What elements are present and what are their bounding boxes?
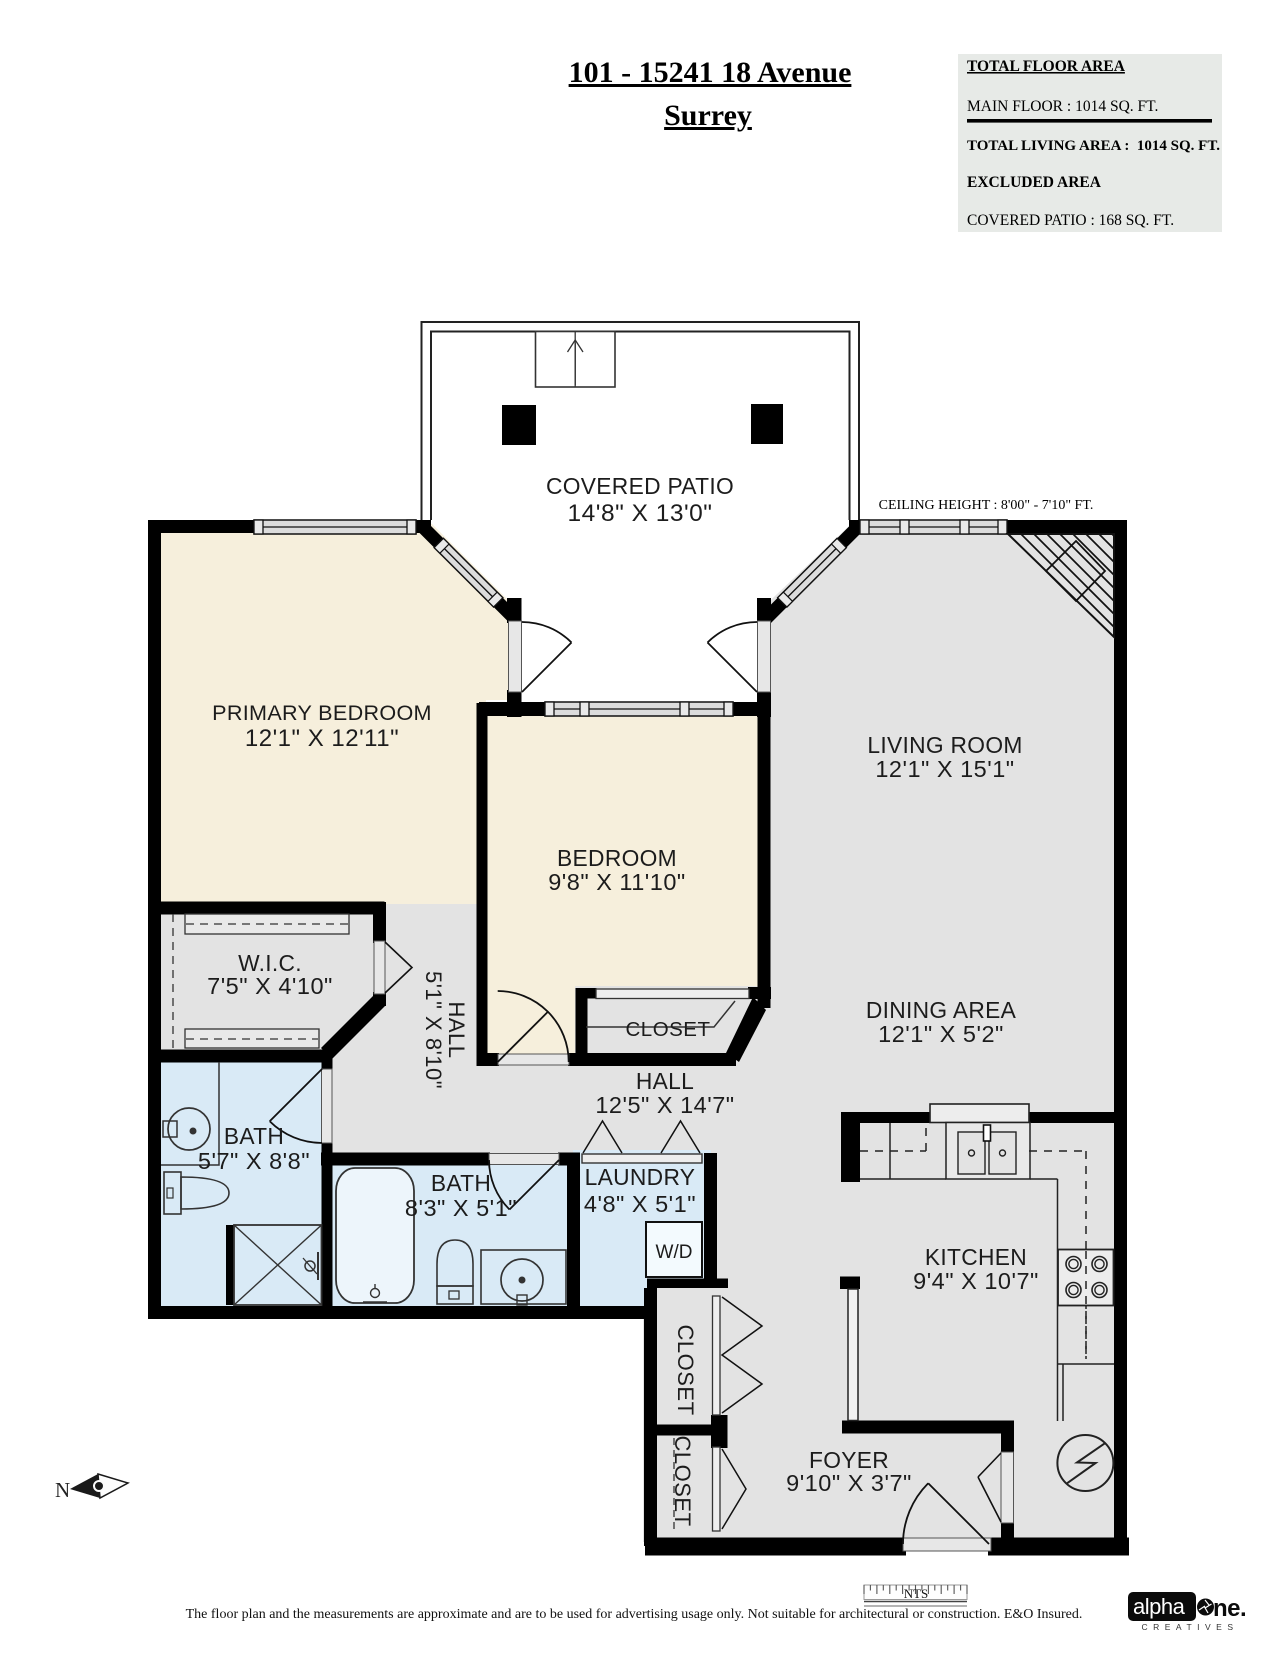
svg-text:CLOSET: CLOSET	[673, 1324, 698, 1415]
svg-text:N: N	[55, 1478, 70, 1502]
svg-text:BEDROOM: BEDROOM	[557, 845, 677, 871]
svg-text:COVERED PATIO : 168 SQ. FT.: COVERED PATIO : 168 SQ. FT.	[967, 212, 1174, 229]
svg-text:CEILING HEIGHT : 8'00" - 7'10": CEILING HEIGHT : 8'00" - 7'10" FT.	[879, 498, 1094, 513]
svg-text:CLOSET: CLOSET	[670, 1435, 695, 1526]
svg-text:5'1" X 8'10": 5'1" X 8'10"	[421, 971, 446, 1089]
svg-text:CLOSET: CLOSET	[625, 1018, 710, 1041]
svg-text:ne.: ne.	[1213, 1595, 1246, 1622]
svg-text:9'8" X 11'10": 9'8" X 11'10"	[548, 869, 686, 895]
svg-text:14'8" X 13'0": 14'8" X 13'0"	[568, 500, 713, 527]
svg-text:PRIMARY BEDROOM: PRIMARY BEDROOM	[212, 700, 432, 725]
svg-text:BATH: BATH	[224, 1123, 284, 1149]
svg-text:NTS: NTS	[904, 1586, 929, 1601]
svg-text:TOTAL LIVING AREA : 1014 SQ.: TOTAL LIVING AREA : 1014 SQ. FT.	[967, 138, 1220, 154]
svg-text:12'5" X 14'7": 12'5" X 14'7"	[595, 1092, 734, 1118]
svg-text:9'4" X 10'7": 9'4" X 10'7"	[913, 1268, 1039, 1294]
svg-text:KITCHEN: KITCHEN	[925, 1244, 1027, 1270]
svg-text:12'1" X 15'1": 12'1" X 15'1"	[875, 756, 1014, 782]
svg-text:COVERED PATIO: COVERED PATIO	[546, 473, 734, 499]
svg-text:BATH: BATH	[431, 1170, 491, 1196]
svg-text:Surrey: Surrey	[664, 99, 752, 132]
svg-text:HALL: HALL	[636, 1068, 694, 1094]
svg-text:The floor plan and the measure: The floor plan and the measurements are …	[186, 1607, 1083, 1622]
svg-text:12'1" X 12'11": 12'1" X 12'11"	[245, 725, 399, 752]
svg-text:DINING AREA: DINING AREA	[866, 997, 1017, 1023]
svg-text:CREATIVES: CREATIVES	[1141, 1622, 1238, 1632]
svg-text:12'1" X 5'2": 12'1" X 5'2"	[878, 1021, 1004, 1047]
svg-text:9'10" X 3'7": 9'10" X 3'7"	[786, 1470, 912, 1496]
svg-text:7'5" X 4'10": 7'5" X 4'10"	[207, 973, 333, 999]
svg-text:8'3" X 5'1": 8'3" X 5'1"	[405, 1195, 517, 1221]
svg-text:alpha: alpha	[1133, 1594, 1186, 1619]
svg-text:EXCLUDED AREA: EXCLUDED AREA	[967, 174, 1102, 191]
svg-text:W/D: W/D	[656, 1242, 693, 1263]
svg-text:4'8" X 5'1": 4'8" X 5'1"	[584, 1191, 696, 1217]
svg-text:LAUNDRY: LAUNDRY	[585, 1164, 696, 1190]
svg-text:5'7" X 8'8": 5'7" X 8'8"	[198, 1148, 310, 1174]
svg-text:TOTAL FLOOR AREA: TOTAL FLOOR AREA	[967, 58, 1126, 75]
svg-text:LIVING ROOM: LIVING ROOM	[867, 732, 1022, 758]
svg-text:101 - 15241 18 Avenue: 101 - 15241 18 Avenue	[569, 56, 852, 89]
svg-text:MAIN FLOOR : 1014 SQ. FT.: MAIN FLOOR : 1014 SQ. FT.	[967, 98, 1158, 115]
svg-text:HALL: HALL	[444, 1001, 469, 1058]
